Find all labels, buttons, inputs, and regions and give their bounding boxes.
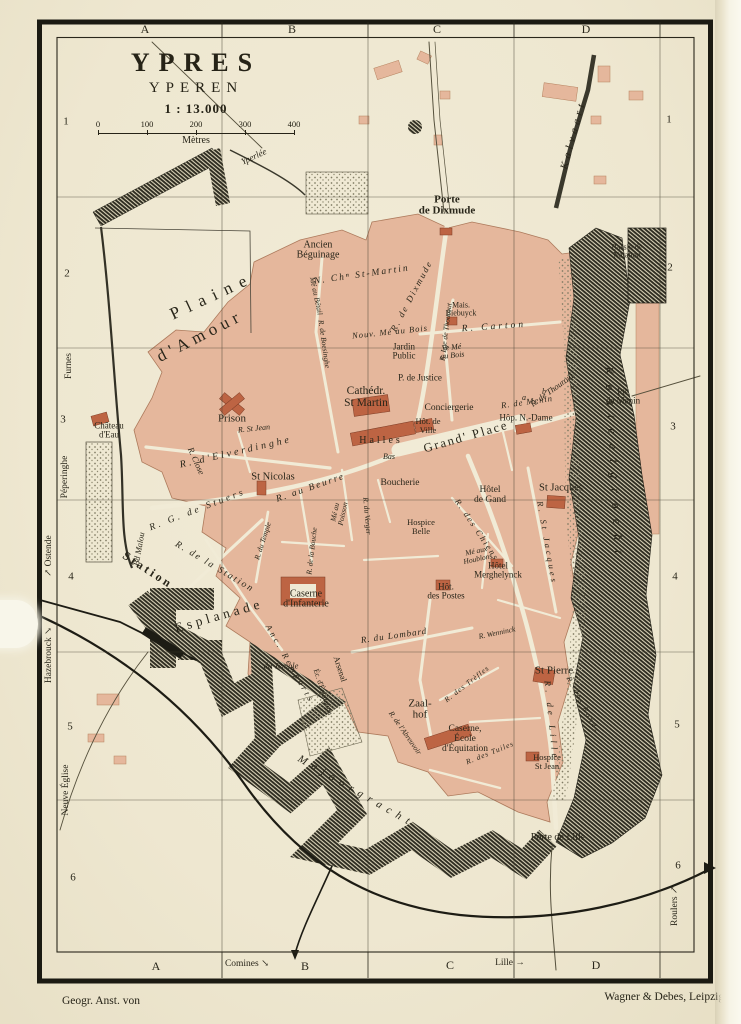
scale-tick-label: 400 <box>288 119 301 129</box>
frame-label: Comines ↘ <box>225 960 269 970</box>
frame-label: 4 <box>672 571 678 582</box>
map-label: R. de la Bouche <box>305 527 319 575</box>
frame-label: 3 <box>670 421 676 432</box>
map-label: St Pierre <box>535 665 573 676</box>
map-label: R. des Ronds <box>565 675 601 734</box>
frame-label: 6 <box>70 872 76 883</box>
map-labels-layer: ABCDAComines ↘BCLille →D123456123456Port… <box>0 0 741 1024</box>
map-label: R. St Jacques <box>535 501 558 586</box>
scale-unit: Mètres <box>98 135 294 146</box>
map-label: a <box>522 394 526 402</box>
frame-label: 5 <box>674 719 680 730</box>
map-label: Hôtel Merghelynck <box>474 562 522 581</box>
scale-tick <box>245 130 246 135</box>
frame-label: C <box>446 959 454 971</box>
map-label: Péperinghe <box>61 456 71 499</box>
map-label: Boucherie <box>380 479 419 489</box>
scale-tick-label: 0 <box>96 119 100 129</box>
map-label: R. du Temple <box>253 521 273 561</box>
map-label: Porte de Lille <box>531 833 585 843</box>
map-title-block: YPRES YPEREN 1 : 13.000 Mètres 010020030… <box>76 48 316 149</box>
map-label: St Nicolas <box>251 473 294 484</box>
map-label: Arsenal <box>332 655 349 683</box>
map-label: Kalvaart <box>559 99 588 171</box>
scale-tick <box>294 130 295 135</box>
map-label: du Temple <box>264 662 299 671</box>
map-label: R. des Trèfles <box>443 664 491 704</box>
map-label: R. Wenninck <box>478 625 516 640</box>
frame-label: B <box>288 23 296 35</box>
map-label: Yperlée <box>240 147 268 167</box>
map-label: Conciergerie <box>425 404 474 414</box>
map-scale-ratio: 1 : 13.000 <box>76 101 316 117</box>
scale-bar: Mètres 0100200300400 <box>98 121 294 149</box>
map-label: R. de Lille <box>542 680 560 762</box>
map-label: Caserne, École d'Équitation <box>442 725 488 755</box>
map-label: N. Chⁿ St-Martin <box>314 264 411 287</box>
map-label: Porte de Dixmude <box>419 195 476 218</box>
map-label: R. St Jean <box>238 423 271 435</box>
map-label: R. de Boesinghe <box>317 319 331 368</box>
map-label: Zaal- hof <box>408 699 431 722</box>
frame-label: 2 <box>64 268 70 279</box>
page-edge-curl <box>715 0 741 1024</box>
map-label: Hôt. des Postes <box>427 583 464 602</box>
map-title: YPRES <box>76 48 316 78</box>
map-label: Esplanade <box>173 597 265 636</box>
frame-label: 5 <box>67 721 73 732</box>
map-page: ABCDAComines ↘BCLille →D123456123456Port… <box>0 0 741 1024</box>
map-label: Furnes <box>65 353 75 379</box>
scale-tick-label: 100 <box>141 119 154 129</box>
map-label: St Jacques <box>539 484 583 495</box>
credit-publisher-right: Wagner & Debes, Leipzig. <box>604 991 727 1003</box>
frame-label: C <box>433 23 441 35</box>
map-label: Station <box>120 549 175 591</box>
map-label: Caserne d'Infanterie <box>283 590 329 611</box>
frame-label: D <box>592 959 601 971</box>
map-label: Hospice Belle <box>407 518 435 536</box>
frame-label: B <box>301 960 309 972</box>
map-label: Roulers ↗ <box>671 886 681 926</box>
map-label: Prison <box>218 413 246 424</box>
credit-publisher-left: Geogr. Anst. von <box>62 995 140 1007</box>
map-label: Nouv. Mé au Bois <box>352 324 429 341</box>
map-label: P. de Justice <box>398 373 442 382</box>
frame-label: A <box>141 23 150 35</box>
map-label: d'Amour <box>154 307 246 366</box>
map-label: Plaine <box>167 269 256 323</box>
map-label: Neuve Église <box>62 765 72 816</box>
scale-tick <box>147 130 148 135</box>
map-label: ↗ Ostende <box>45 535 55 576</box>
frame-label: 2 <box>667 262 673 273</box>
map-label: R. du Lombard <box>360 627 428 646</box>
frame-label: 1 <box>63 116 69 127</box>
map-label: Bassin de Natation <box>612 244 643 261</box>
scale-tick-label: 300 <box>239 119 252 129</box>
map-label: b <box>542 388 546 396</box>
scale-tick-label: 200 <box>190 119 203 129</box>
map-label: Ancien Béguinage <box>297 241 340 262</box>
map-label: Hazebrouck ↘ <box>45 627 55 683</box>
frame-label: A <box>152 960 161 972</box>
scale-tick <box>196 130 197 135</box>
map-label: R. de la Station <box>173 540 256 595</box>
map-label: Mé au Poisson <box>329 500 349 526</box>
frame-label: D <box>582 23 591 35</box>
frame-label: Lille → <box>495 959 525 969</box>
map-subtitle: YPEREN <box>76 80 316 97</box>
map-label: Hôtel de Gand <box>474 486 506 506</box>
map-label: Château d'Eau <box>94 422 124 441</box>
map-label: Hospice St Jean <box>533 753 561 771</box>
map-label: R. de Menin <box>500 394 553 410</box>
map-label: Halles <box>359 436 403 446</box>
map-label: Majoorgracht <box>295 754 416 831</box>
map-label: R. Carton <box>461 321 526 335</box>
frame-label: 4 <box>68 571 74 582</box>
scale-tick <box>98 130 99 135</box>
frame-label: 6 <box>675 860 681 871</box>
map-label: Bas <box>383 453 395 461</box>
map-label: Éc. d'Équitation <box>312 668 334 716</box>
map-label: Hôp. N.-Dame <box>499 413 552 422</box>
map-label: R. G. de Stuers <box>148 488 247 534</box>
map-label: Jardin Public <box>392 343 415 362</box>
map-label: Cathédr. St Martin <box>344 386 388 410</box>
frame-label: 1 <box>666 114 672 125</box>
frame-label: 3 <box>60 414 66 425</box>
map-label: R. du Verger <box>361 497 372 535</box>
map-label: Hôt. de Ville <box>415 417 440 435</box>
